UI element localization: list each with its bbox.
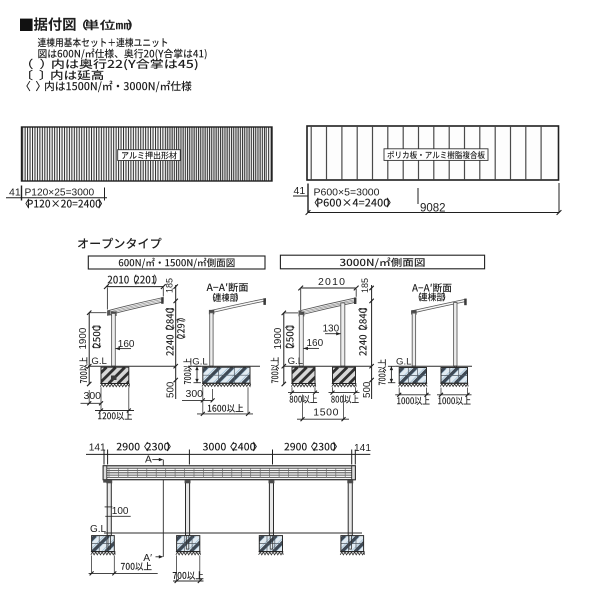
svg-text:141: 141	[354, 443, 371, 454]
svg-text:160: 160	[307, 338, 324, 349]
svg-text:100: 100	[112, 506, 129, 517]
svg-text:300: 300	[84, 390, 102, 402]
svg-text:141: 141	[89, 442, 106, 453]
svg-text:1900: 1900	[78, 327, 89, 349]
svg-text:41: 41	[294, 185, 306, 197]
svg-text:G.L: G.L	[91, 356, 107, 367]
svg-text:500: 500	[166, 381, 177, 398]
svg-text:1500: 1500	[313, 407, 339, 419]
svg-text:185: 185	[360, 278, 370, 293]
svg-text:500: 500	[362, 381, 373, 398]
svg-text:2010: 2010	[318, 276, 346, 288]
svg-text:41: 41	[9, 187, 21, 199]
svg-text:P600×5=3000: P600×5=3000	[314, 187, 380, 199]
svg-text:A: A	[145, 454, 152, 465]
svg-text:185: 185	[165, 278, 175, 293]
svg-text:300: 300	[186, 388, 204, 400]
svg-text:9082: 9082	[420, 203, 446, 215]
svg-text:G.L: G.L	[288, 356, 304, 367]
svg-text:P120×25=3000: P120×25=3000	[25, 188, 95, 199]
svg-text:1900: 1900	[273, 327, 284, 349]
